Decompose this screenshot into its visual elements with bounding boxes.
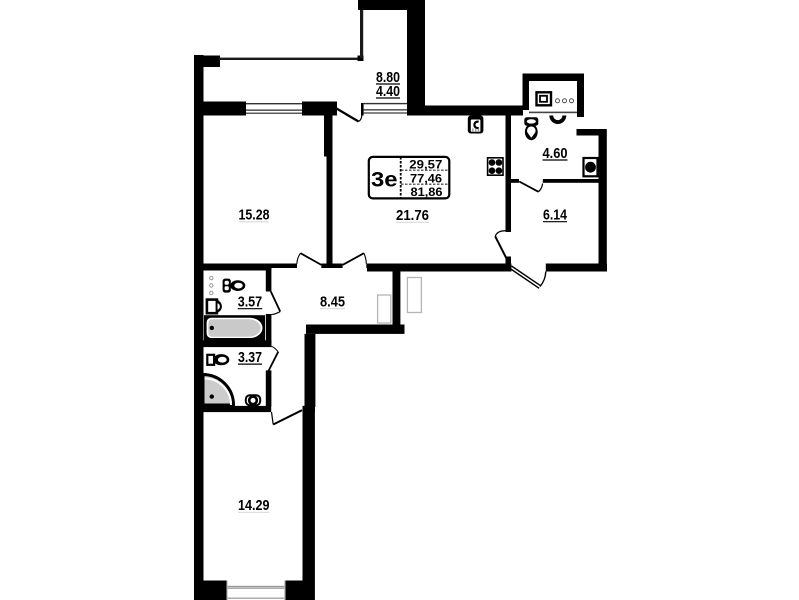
svg-text:29,57: 29,57	[409, 158, 442, 172]
svg-text:14.29: 14.29	[238, 497, 270, 514]
svg-text:6.14: 6.14	[543, 207, 568, 224]
svg-text:8.45: 8.45	[320, 294, 345, 311]
svg-text:15.28: 15.28	[239, 207, 270, 224]
svg-text:21.76: 21.76	[396, 207, 429, 224]
svg-text:3е: 3е	[371, 168, 398, 192]
svg-text:4.60: 4.60	[543, 145, 568, 162]
svg-text:3.57: 3.57	[238, 294, 263, 311]
svg-text:77,46: 77,46	[410, 171, 442, 185]
svg-text:3.37: 3.37	[238, 349, 262, 366]
svg-text:81,86: 81,86	[411, 185, 443, 199]
